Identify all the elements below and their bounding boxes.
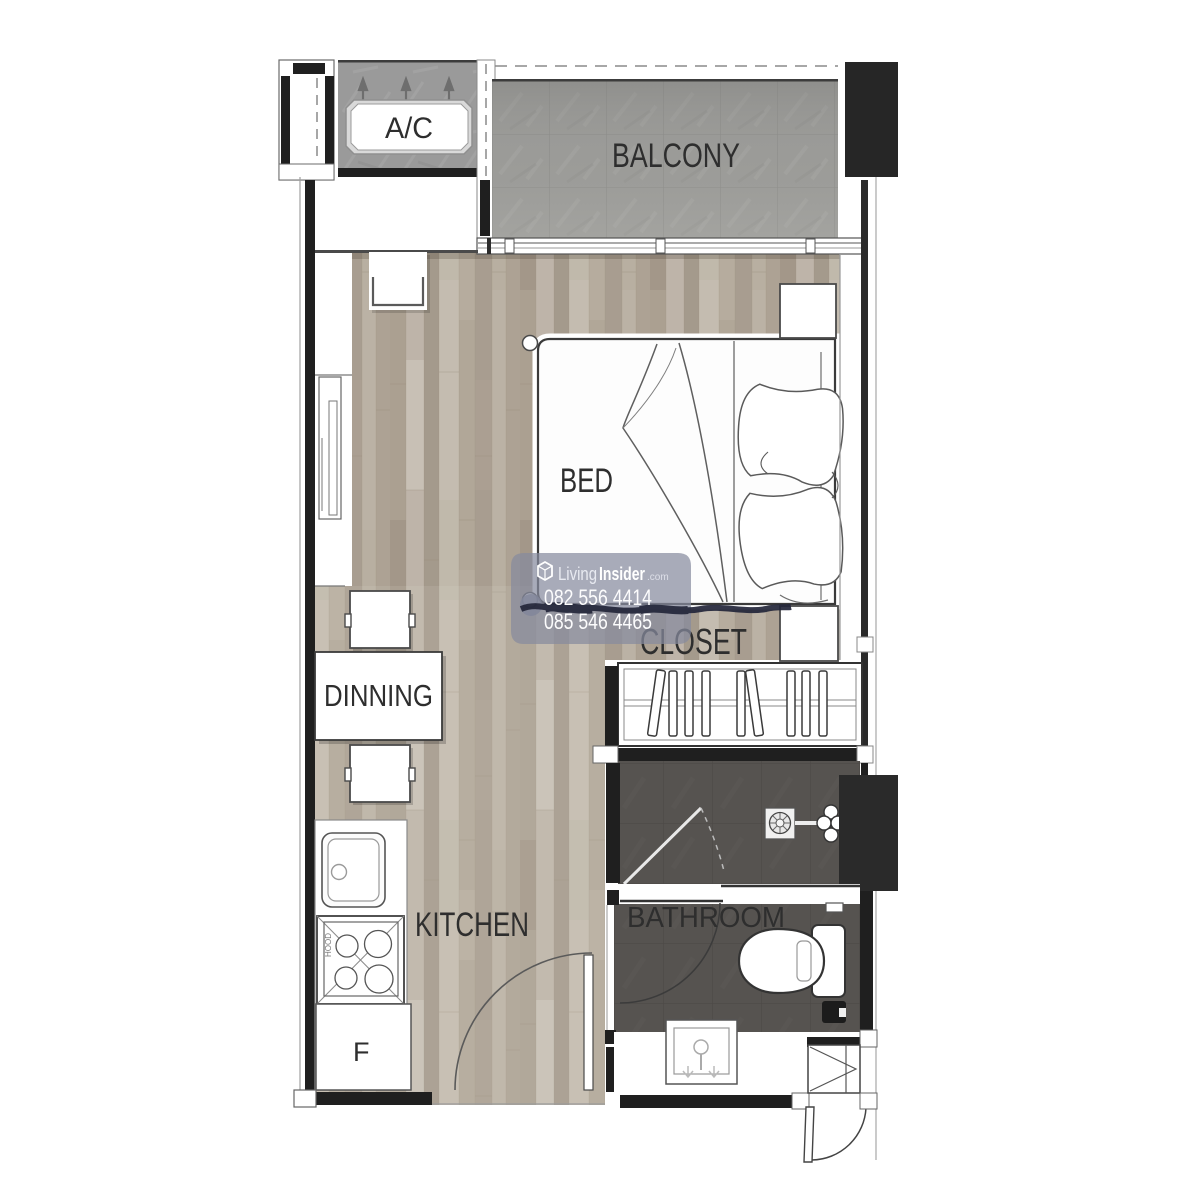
svg-text:HOOD: HOOD (324, 933, 333, 957)
svg-text:BED: BED (560, 462, 613, 500)
svg-text:F: F (353, 1037, 370, 1067)
svg-text:A/C: A/C (385, 112, 433, 145)
svg-text:BATHROOM: BATHROOM (627, 902, 785, 934)
svg-text:BALCONY: BALCONY (612, 137, 740, 175)
svg-text:082 556 4414: 082 556 4414 (544, 585, 652, 610)
svg-text:Living: Living (558, 564, 597, 584)
svg-text:DINNING: DINNING (324, 678, 433, 713)
svg-text:085 546 4465: 085 546 4465 (544, 609, 652, 634)
svg-text:Insider: Insider (599, 564, 645, 584)
svg-text:KITCHEN: KITCHEN (415, 906, 529, 944)
svg-text:.com: .com (647, 572, 669, 583)
